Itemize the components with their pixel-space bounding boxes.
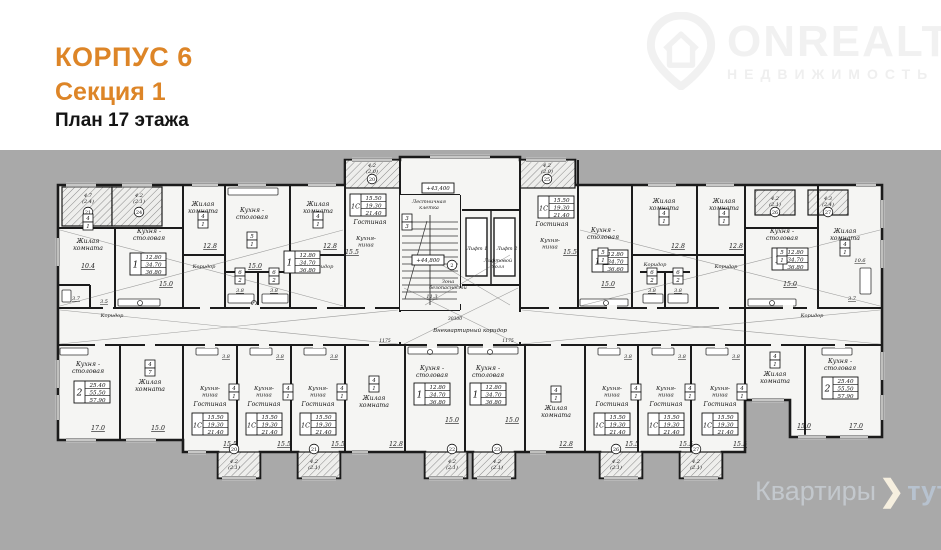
svg-text:1С: 1С [595, 422, 604, 430]
room-label: Кухня -столовая [133, 228, 165, 242]
svg-text:23: 23 [494, 447, 500, 453]
marker-pair: 62 [269, 268, 279, 284]
apartment-stamp: 1С15.5019.3021.40 [300, 413, 336, 436]
svg-text:4: 4 [200, 214, 205, 220]
svg-text:1: 1 [372, 386, 376, 392]
level-mark: +44,800 [412, 255, 444, 265]
room-label: 3.7 [848, 296, 857, 302]
chevron-right-icon: ❯ [879, 474, 904, 509]
detail-circle: 21 [309, 444, 319, 454]
svg-text:36.60: 36.60 [607, 267, 623, 273]
svg-text:1: 1 [740, 394, 744, 400]
apartment-stamp: 112.8034.7036.80 [130, 253, 166, 276]
room-label: 15.5 [733, 441, 747, 448]
room-label: Коридор [192, 264, 216, 270]
svg-text:55.50: 55.50 [89, 391, 105, 397]
floor-plan: 4.7(2.4)4.2(2.1)ЖилаякомнатаКухня -столо… [0, 0, 941, 550]
svg-text:15.50: 15.50 [663, 415, 679, 421]
room-label: 3.8 [276, 354, 284, 360]
svg-text:21.40: 21.40 [608, 430, 625, 436]
svg-text:2: 2 [649, 278, 654, 284]
room-label: 17.0 [849, 423, 863, 430]
room-label: Кухня -столовая [766, 228, 798, 242]
room-label: 3.8 [648, 288, 656, 294]
marker-pair: 62 [673, 268, 683, 284]
room-label: Гостиная [594, 401, 628, 408]
room-label: 15.5 [345, 249, 359, 256]
svg-text:34.70: 34.70 [145, 263, 161, 269]
marker-pair: 41 [198, 212, 208, 228]
svg-text:1С: 1С [539, 205, 548, 213]
svg-text:19.30: 19.30 [365, 204, 381, 210]
room-label: Гостиная [702, 401, 736, 408]
svg-text:1: 1 [722, 219, 726, 225]
svg-text:12.80: 12.80 [299, 253, 315, 259]
svg-text:1С: 1С [193, 422, 202, 430]
room-label: 15.5 [277, 441, 291, 448]
svg-text:21.40: 21.40 [364, 211, 381, 217]
room-label: 3.8 [330, 354, 338, 360]
staircase [400, 195, 460, 310]
marker-pair: 41 [685, 384, 695, 400]
room-label: 12.8 [729, 243, 743, 250]
marker-pair: 41 [737, 384, 747, 400]
svg-text:1С: 1С [301, 422, 310, 430]
room-label: 15.0 [783, 281, 797, 288]
svg-text:1: 1 [316, 222, 320, 228]
svg-text:34.70: 34.70 [787, 258, 803, 264]
svg-text:2: 2 [76, 389, 83, 399]
detail-circle: 22 [447, 444, 457, 454]
marker-pair: 47 [145, 360, 155, 376]
detail-circle: 27 [691, 444, 701, 454]
svg-text:4: 4 [687, 386, 692, 392]
detail-circle: 2 [447, 260, 457, 270]
svg-text:12.80: 12.80 [607, 252, 623, 258]
svg-text:4: 4 [285, 386, 290, 392]
svg-text:25.40: 25.40 [836, 379, 853, 385]
room-label: Кухня-ниша [709, 386, 730, 399]
svg-text:15.50: 15.50 [717, 415, 733, 421]
svg-text:21: 21 [311, 447, 317, 453]
svg-text:2: 2 [675, 278, 680, 284]
room-label: 3.5 [100, 299, 108, 305]
room-label: 3.8 [624, 354, 632, 360]
apartment-stamp: 1С15.5019.3021.40 [350, 194, 386, 217]
room-label: 15.5 [679, 441, 693, 448]
svg-text:5: 5 [250, 234, 254, 240]
svg-text:3: 3 [405, 216, 409, 222]
detail-circle: 25 [542, 174, 552, 184]
apartment-stamp: 112.8034.7036.80 [284, 251, 320, 274]
room-label: Жилаякомната [135, 379, 165, 393]
room-label: 3.8 [270, 288, 278, 294]
detail-circle: 20 [229, 444, 239, 454]
room-label: Жилаякомната [541, 405, 571, 419]
apartment-stamp: 1С15.5019.3021.40 [246, 413, 282, 436]
marker-pair: 62 [235, 268, 245, 284]
room-label: 12.8 [323, 243, 337, 250]
svg-text:1: 1 [232, 394, 236, 400]
svg-text:21.40: 21.40 [552, 213, 569, 219]
detail-circle: 24 [134, 207, 144, 217]
apartment-stamp: 112.8034.7036.80 [470, 383, 506, 406]
svg-text:4: 4 [339, 386, 344, 392]
apartment-stamp: 225.4055.5057.90 [822, 377, 858, 400]
svg-text:57.90: 57.90 [89, 398, 105, 404]
svg-text:4: 4 [633, 386, 638, 392]
room-label: 12.8 [559, 441, 573, 448]
svg-text:1: 1 [201, 222, 205, 228]
marker-pair: 33 [402, 214, 412, 230]
svg-text:19.30: 19.30 [553, 206, 569, 212]
room-label: 10.6 [854, 258, 866, 264]
svg-text:21.40: 21.40 [260, 430, 277, 436]
svg-text:1: 1 [773, 362, 777, 368]
room-label: 3.8 [236, 288, 244, 294]
svg-text:1: 1 [601, 258, 605, 264]
room-label: 15.0 [445, 417, 459, 424]
room-label: 15.0 [159, 281, 173, 288]
marker-pair: 41 [83, 214, 93, 230]
svg-text:25.40: 25.40 [88, 383, 105, 389]
svg-text:1: 1 [340, 394, 344, 400]
room-label: 15.0 [601, 281, 615, 288]
room-label: 1175 [379, 338, 391, 344]
apartment-stamp: 1С15.5019.3021.40 [648, 413, 684, 436]
svg-text:26: 26 [772, 210, 778, 216]
svg-text:1: 1 [780, 258, 784, 264]
room-label: 15.5 [331, 441, 345, 448]
room-label: 3.8 [732, 354, 740, 360]
svg-text:19.30: 19.30 [717, 423, 733, 429]
room-label: 15.0 [797, 423, 811, 430]
marker-pair: 51 [598, 248, 608, 264]
svg-text:6: 6 [238, 270, 242, 276]
svg-text:12.80: 12.80 [429, 385, 445, 391]
detail-circle: 26 [770, 207, 780, 217]
svg-text:36.80: 36.80 [787, 265, 803, 271]
room-label: 3.7 [72, 296, 81, 302]
marker-pair: 41 [551, 386, 561, 402]
room-label: Кухня -столовая [587, 227, 619, 241]
room-label: Жилаякомната [359, 395, 389, 409]
svg-text:2: 2 [824, 385, 831, 395]
room-label: Гостиная [534, 221, 568, 228]
marker-pair: 51 [247, 232, 257, 248]
svg-text:1: 1 [662, 219, 666, 225]
room-label: Лифт 2 [496, 245, 518, 252]
svg-text:19.30: 19.30 [261, 423, 277, 429]
room-label: Кухня-ниша [307, 386, 328, 399]
room-label: Гостиная [352, 219, 386, 226]
svg-text:1: 1 [843, 250, 847, 256]
room-label: 17.0 [91, 425, 105, 432]
svg-text:4: 4 [553, 388, 558, 394]
marker-pair: 41 [719, 209, 729, 225]
svg-text:19.30: 19.30 [663, 423, 679, 429]
room-label: Кухня-ниша [601, 386, 622, 399]
marker-pair: 51 [777, 248, 787, 264]
svg-text:4: 4 [661, 211, 666, 217]
svg-text:27: 27 [825, 210, 831, 216]
room-label: 12.8 [671, 243, 685, 250]
svg-text:4: 4 [371, 378, 376, 384]
detail-circle: 20 [367, 174, 377, 184]
svg-text:24: 24 [136, 210, 142, 216]
svg-text:1С: 1С [649, 422, 658, 430]
room-label: 12.8 [203, 243, 217, 250]
apartment-stamp: 112.8034.7036.80 [414, 383, 450, 406]
wm-text-1: Квартиры [755, 476, 876, 507]
svg-text:4: 4 [315, 214, 320, 220]
svg-text:15.50: 15.50 [207, 415, 223, 421]
room-label: Коридор [100, 313, 124, 319]
svg-text:4: 4 [147, 362, 152, 368]
room-label: Лифт 1 [466, 245, 488, 252]
svg-text:20: 20 [231, 447, 237, 453]
svg-text:6: 6 [650, 270, 654, 276]
apartment-stamp: 1С15.5019.3021.40 [702, 413, 738, 436]
screenshot-root: КОРПУС 6 Секция 1 План 17 этажа ONREALT … [0, 0, 941, 550]
room-label: 15.5 [563, 249, 577, 256]
room-label: Жилаякомната [73, 238, 103, 252]
room-label: 10.4 [81, 263, 95, 270]
svg-text:1: 1 [86, 224, 90, 230]
kvartiry-tut-watermark: Квартиры ❯ тут [755, 474, 941, 509]
svg-text:27: 27 [693, 447, 699, 453]
svg-text:15.50: 15.50 [315, 415, 331, 421]
room-label: Кухня -столовая [472, 365, 504, 379]
svg-text:+44,800: +44,800 [416, 258, 440, 264]
marker-pair: 41 [659, 209, 669, 225]
svg-text:55.50: 55.50 [837, 387, 853, 393]
apartment-stamp: 1С15.5019.3021.40 [594, 413, 630, 436]
svg-text:2: 2 [450, 263, 453, 269]
room-label: Кухня-ниша [539, 238, 560, 251]
room-label: Кухня-ниша [199, 386, 220, 399]
svg-text:1: 1 [634, 394, 638, 400]
svg-text:15.50: 15.50 [261, 415, 277, 421]
svg-text:19.30: 19.30 [207, 423, 223, 429]
svg-text:36.80: 36.80 [485, 400, 501, 406]
svg-text:12.80: 12.80 [787, 250, 803, 256]
marker-pair: 41 [229, 384, 239, 400]
room-label: 3.8 [678, 354, 686, 360]
detail-circle: 26 [611, 444, 621, 454]
svg-text:6: 6 [676, 270, 680, 276]
apartment-stamp: 1С15.5019.3021.40 [192, 413, 228, 436]
room-label: 15.0 [505, 417, 519, 424]
detail-circle: 27 [823, 207, 833, 217]
apartment-stamp: 1С15.5019.3021.40 [538, 196, 574, 219]
marker-pair: 41 [840, 240, 850, 256]
marker-pair: 41 [631, 384, 641, 400]
room-label: 15.5 [625, 441, 639, 448]
svg-text:1: 1 [250, 242, 254, 248]
apartment-stamp: 225.4055.5057.90 [74, 381, 110, 404]
room-label: Кухня-ниша [253, 386, 274, 399]
svg-text:+43,400: +43,400 [426, 186, 450, 192]
svg-text:1С: 1С [351, 203, 360, 211]
room-label: Гостиная [192, 401, 226, 408]
marker-pair: 41 [369, 376, 379, 392]
svg-text:4: 4 [772, 354, 777, 360]
svg-text:19.30: 19.30 [315, 423, 331, 429]
marker-pair: 41 [283, 384, 293, 400]
room-label: 3.8 [222, 354, 230, 360]
svg-text:4: 4 [721, 211, 726, 217]
svg-text:1С: 1С [247, 422, 256, 430]
room-label: Гостиная [648, 401, 682, 408]
svg-text:57.90: 57.90 [837, 394, 853, 400]
svg-text:21.40: 21.40 [206, 430, 223, 436]
room-label: 1175 [502, 338, 514, 344]
svg-text:2: 2 [271, 278, 276, 284]
svg-text:36.80: 36.80 [145, 270, 161, 276]
room-label: Кухня-ниша [655, 386, 676, 399]
svg-text:20: 20 [369, 177, 375, 183]
svg-text:12.80: 12.80 [145, 255, 161, 261]
svg-text:3: 3 [405, 224, 409, 230]
room-label: 3.8 [674, 288, 682, 294]
marker-pair: 41 [770, 352, 780, 368]
room-label: Кухня -столовая [824, 358, 856, 372]
room-label: Жилаякомната [760, 371, 790, 385]
marker-pair: 41 [313, 212, 323, 228]
room-label: Гостиная [246, 401, 280, 408]
svg-text:36.80: 36.80 [429, 400, 445, 406]
svg-text:34.70: 34.70 [429, 393, 445, 399]
marker-pair: 41 [337, 384, 347, 400]
room-label: Кухня -столовая [72, 361, 104, 375]
svg-text:1: 1 [286, 394, 290, 400]
svg-text:4: 4 [842, 242, 847, 248]
room-label: Коридор [800, 313, 824, 319]
svg-text:34.70: 34.70 [607, 260, 623, 266]
svg-text:4: 4 [231, 386, 236, 392]
room-label: 11.3 [426, 294, 437, 300]
svg-text:1: 1 [473, 391, 479, 401]
room-label: Коридор [714, 264, 738, 270]
svg-text:15.50: 15.50 [365, 196, 381, 202]
svg-text:1С: 1С [703, 422, 712, 430]
svg-text:7: 7 [148, 370, 152, 376]
svg-text:1: 1 [287, 259, 293, 269]
level-mark: +43,400 [422, 183, 454, 193]
svg-text:21.40: 21.40 [662, 430, 679, 436]
svg-text:2: 2 [237, 278, 242, 284]
room-label: Кухня-ниша [355, 236, 376, 249]
room-label: 15.0 [248, 263, 262, 270]
svg-text:21.40: 21.40 [314, 430, 331, 436]
room-label: Коридор [643, 262, 667, 268]
svg-text:34.70: 34.70 [299, 261, 315, 267]
svg-text:5: 5 [601, 250, 605, 256]
detail-circle: 23 [492, 444, 502, 454]
apartment-stamp: 112.8034.7036.60 [592, 250, 628, 273]
room-label: Гостиная [300, 401, 334, 408]
wm-text-2: тут [907, 476, 941, 507]
svg-text:15.50: 15.50 [609, 415, 625, 421]
svg-text:4: 4 [739, 386, 744, 392]
svg-text:4: 4 [85, 216, 90, 222]
marker-pair: 62 [647, 268, 657, 284]
svg-text:26: 26 [613, 447, 619, 453]
room-label: 12.8 [389, 441, 403, 448]
room-label: 15.0 [151, 425, 165, 432]
room-label: Кухня -столовая [416, 365, 448, 379]
svg-text:1: 1 [688, 394, 692, 400]
room-label: Внеквартирный коридор [432, 328, 507, 334]
svg-text:25: 25 [544, 177, 550, 183]
svg-text:15.50: 15.50 [553, 198, 569, 204]
svg-text:1: 1 [417, 391, 423, 401]
svg-text:21.40: 21.40 [716, 430, 733, 436]
svg-text:34.70: 34.70 [485, 393, 501, 399]
svg-text:1: 1 [554, 396, 558, 402]
svg-text:6: 6 [272, 270, 276, 276]
room-label: 30300 [448, 316, 462, 322]
svg-text:12.80: 12.80 [485, 385, 501, 391]
svg-text:36.80: 36.80 [299, 268, 315, 274]
svg-text:22: 22 [449, 447, 455, 453]
room-label: Кухня -столовая [236, 207, 268, 221]
svg-text:5: 5 [780, 250, 784, 256]
svg-text:19.30: 19.30 [609, 423, 625, 429]
svg-text:1: 1 [133, 261, 139, 271]
